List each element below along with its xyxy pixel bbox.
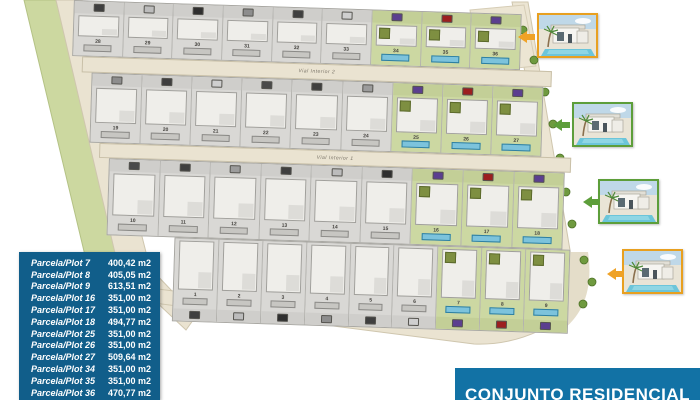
- villa-render-thumbnail-2: [572, 102, 633, 147]
- table-row: Parcela/Plot 17351,00 m2: [19, 304, 160, 316]
- car-icon: [129, 162, 140, 170]
- house-footprint: [415, 183, 458, 226]
- lawn-square: [520, 189, 531, 200]
- patio: [499, 41, 514, 48]
- front-garden: 14: [310, 224, 360, 243]
- plot-33: 33: [321, 9, 372, 65]
- arrow-tail: [592, 199, 600, 205]
- villa-render-image: [539, 15, 596, 56]
- car-icon: [212, 79, 223, 87]
- plot-13: 13: [259, 164, 312, 241]
- arrow-head: [607, 268, 616, 280]
- car-icon: [230, 165, 241, 173]
- table-row: Parcela/Plot 26351,00 m2: [19, 340, 160, 352]
- plot-area: 509,64 m2: [108, 352, 151, 362]
- driveway: [362, 167, 412, 181]
- plots-table-rows: Parcela/Plot 7400,42 m2Parcela/Plot 8405…: [19, 257, 160, 399]
- plot-19: 19: [90, 74, 142, 144]
- front-garden: 26: [441, 136, 491, 155]
- plot-6: 6: [392, 245, 438, 328]
- plot-24: 24: [341, 82, 393, 152]
- patio: [449, 39, 464, 46]
- plot-21: 21: [191, 77, 243, 147]
- front-garden: 36: [470, 51, 519, 70]
- villa-render-thumbnail-3: [598, 179, 659, 224]
- house-footprint: [516, 186, 559, 229]
- villa-render-image: [574, 104, 631, 145]
- pool: [314, 302, 339, 310]
- pool: [182, 298, 207, 306]
- patio: [420, 120, 435, 132]
- pool: [169, 225, 198, 233]
- pool: [219, 227, 248, 235]
- plot-31: 31: [222, 6, 273, 62]
- front-garden: 13: [259, 222, 309, 241]
- house-footprint: [112, 173, 155, 216]
- plot-27: 27: [491, 86, 542, 156]
- car-icon: [412, 86, 423, 94]
- car-icon: [391, 13, 402, 21]
- plot-area: 351,00 m2: [108, 340, 151, 350]
- front-garden: 34: [371, 47, 420, 66]
- driveway: [312, 166, 362, 180]
- house-footprint: [365, 181, 408, 224]
- house-footprint: [276, 21, 317, 43]
- plot-26: 26: [441, 85, 493, 155]
- lawn-square: [399, 100, 410, 111]
- house-footprint: [485, 250, 521, 300]
- pool: [270, 300, 295, 308]
- location-arrow-icon: [607, 268, 624, 280]
- plot-label: Parcela/Plot 18: [31, 317, 95, 327]
- driveway: [343, 82, 392, 96]
- plot-28: 28: [73, 1, 124, 57]
- house-footprint: [346, 96, 388, 132]
- pool: [332, 52, 360, 60]
- plot-9: 9: [524, 249, 569, 332]
- driveway: [305, 312, 348, 325]
- plot-label: Parcela/Plot 34: [31, 364, 95, 374]
- front-garden: 4: [305, 295, 348, 313]
- pool: [232, 49, 260, 57]
- car-icon: [331, 168, 342, 176]
- front-garden: 22: [241, 129, 291, 148]
- driveway: [323, 9, 372, 23]
- plot-7: 7: [436, 247, 482, 330]
- driveway: [124, 3, 173, 17]
- patio: [169, 112, 184, 124]
- house-footprint: [222, 242, 258, 292]
- villa-render-image: [624, 251, 681, 292]
- car-icon: [452, 319, 463, 327]
- lawn-square: [419, 186, 430, 197]
- pool: [226, 299, 251, 307]
- plot-2: 2: [217, 240, 263, 323]
- pool: [251, 136, 280, 144]
- plot-label: Parcela/Plot 17: [31, 305, 95, 315]
- car-icon: [512, 89, 523, 97]
- car-icon: [93, 4, 104, 12]
- table-row: Parcela/Plot 36470,77 m2: [19, 387, 160, 399]
- house-footprint: [264, 178, 307, 221]
- lawn-square: [445, 252, 456, 263]
- pool: [133, 46, 161, 54]
- location-arrow-icon: [583, 196, 600, 208]
- patio: [320, 117, 335, 129]
- plot-label: Parcela/Plot 26: [31, 340, 95, 350]
- front-garden: 7: [437, 300, 480, 318]
- house-footprint: [178, 240, 214, 290]
- car-icon: [382, 170, 393, 178]
- pool: [351, 139, 380, 147]
- plot-area: 351,00 m2: [108, 364, 151, 374]
- villa-render-image: [600, 181, 657, 222]
- plot-17: 17: [461, 170, 514, 247]
- front-garden: 33: [321, 46, 370, 65]
- banner-title: CONJUNTO RESIDENCIAL: [455, 385, 700, 400]
- front-garden: 3: [261, 294, 304, 312]
- front-garden: 11: [158, 219, 208, 238]
- house-footprint: [425, 26, 466, 48]
- arrow-head: [518, 31, 527, 43]
- house-footprint: [397, 247, 433, 297]
- driveway: [393, 83, 442, 97]
- plot-area: 351,00 m2: [108, 329, 151, 339]
- plot-label: Parcela/Plot 36: [31, 388, 95, 398]
- villa-render-thumbnail-1: [537, 13, 598, 58]
- house-footprint: [266, 243, 302, 293]
- arrow-head: [553, 119, 562, 131]
- pool: [101, 131, 130, 139]
- patio: [300, 35, 315, 42]
- arrow-tail: [562, 122, 570, 128]
- house-footprint: [163, 175, 206, 218]
- plot-36: 36: [470, 14, 520, 70]
- pool: [183, 48, 211, 56]
- plot-label: Parcela/Plot 7: [31, 258, 90, 268]
- table-row: Parcela/Plot 34351,00 m2: [19, 363, 160, 375]
- front-garden: 9: [524, 302, 567, 320]
- patio: [440, 210, 455, 224]
- front-garden: 29: [123, 40, 172, 59]
- front-garden: 20: [141, 126, 191, 145]
- patio: [288, 205, 303, 219]
- driveway: [110, 159, 160, 173]
- patio: [549, 283, 562, 299]
- front-garden: 27: [491, 137, 541, 156]
- front-garden: 31: [222, 43, 271, 62]
- car-icon: [111, 76, 122, 84]
- patio: [400, 38, 415, 45]
- patio: [418, 279, 431, 295]
- pool: [381, 54, 409, 62]
- car-icon: [408, 318, 419, 326]
- house-footprint: [446, 99, 488, 135]
- car-icon: [342, 11, 353, 19]
- car-icon: [496, 320, 507, 328]
- house-footprint: [396, 97, 438, 133]
- plot-20: 20: [141, 75, 193, 145]
- patio: [119, 110, 134, 122]
- car-icon: [462, 87, 473, 95]
- table-row: Parcela/Plot 18494,77 m2: [19, 316, 160, 328]
- driveway: [293, 80, 342, 94]
- patio: [198, 272, 211, 288]
- table-row: Parcela/Plot 27509,64 m2: [19, 351, 160, 363]
- car-icon: [262, 81, 273, 89]
- driveway: [436, 317, 479, 330]
- plot-row-4: 123456789: [172, 237, 570, 333]
- front-garden: 35: [421, 49, 470, 68]
- house-footprint: [195, 91, 237, 127]
- patio: [187, 202, 202, 216]
- plot-label: Parcela/Plot 9: [31, 281, 90, 291]
- plot-area: 351,00 m2: [108, 293, 151, 303]
- patio: [238, 204, 253, 218]
- plot-11: 11: [158, 161, 211, 238]
- driveway: [174, 4, 223, 18]
- table-row: Parcela/Plot 35351,00 m2: [19, 375, 160, 387]
- table-row: Parcela/Plot 7400,42 m2: [19, 257, 160, 269]
- patio: [462, 280, 475, 296]
- pool: [118, 224, 147, 232]
- plot-29: 29: [123, 3, 174, 59]
- car-icon: [432, 171, 443, 179]
- driveway: [413, 169, 463, 183]
- lawn-square: [379, 28, 390, 39]
- pool: [421, 233, 450, 241]
- patio: [339, 207, 354, 221]
- plot-12: 12: [209, 162, 262, 239]
- plots-price-table: Parcela/Plot 7400,42 m2Parcela/Plot 8405…: [19, 252, 160, 400]
- plot-15: 15: [360, 167, 413, 244]
- front-garden: 28: [73, 38, 122, 57]
- house-footprint: [441, 249, 477, 299]
- driveway: [422, 12, 471, 26]
- car-icon: [281, 167, 292, 175]
- front-garden: 1: [173, 291, 216, 309]
- car-icon: [533, 175, 544, 183]
- plot-label: Parcela/Plot 25: [31, 329, 95, 339]
- car-icon: [312, 83, 323, 91]
- plot-10: 10: [108, 159, 161, 236]
- pool: [431, 55, 459, 63]
- car-icon: [441, 15, 452, 23]
- plot-25: 25: [391, 83, 443, 153]
- plot-32: 32: [272, 7, 323, 63]
- front-garden: 6: [393, 298, 436, 316]
- car-icon: [491, 16, 502, 24]
- plot-area: 351,00 m2: [108, 305, 151, 315]
- brochure-page: { "banner": { "text": "CONJUNTO RESIDENC…: [0, 0, 700, 400]
- plot-35: 35: [421, 12, 472, 68]
- house-footprint: [376, 25, 417, 47]
- pool: [402, 305, 427, 313]
- driveway: [160, 161, 210, 175]
- front-garden: 25: [391, 134, 441, 153]
- car-icon: [179, 163, 190, 171]
- patio: [220, 113, 235, 125]
- car-icon: [161, 78, 172, 86]
- patio: [102, 29, 117, 36]
- plot-area: 405,05 m2: [108, 270, 151, 280]
- patio: [374, 278, 387, 294]
- driveway: [514, 172, 564, 186]
- car-icon: [364, 316, 375, 324]
- pool: [371, 232, 400, 240]
- car-icon: [540, 322, 551, 330]
- plot-34: 34: [371, 10, 422, 66]
- plot-label: Parcela/Plot 8: [31, 270, 90, 280]
- driveway: [524, 319, 567, 332]
- driveway: [75, 1, 124, 15]
- pool: [301, 137, 330, 145]
- plot-area: 470,77 m2: [108, 388, 151, 398]
- pool: [446, 306, 471, 314]
- plot-label: Parcela/Plot 35: [31, 376, 95, 386]
- driveway: [261, 164, 311, 178]
- arrow-head: [583, 196, 592, 208]
- plot-area: 400,42 m2: [108, 258, 151, 268]
- house-footprint: [127, 17, 168, 39]
- front-garden: 32: [272, 44, 321, 63]
- house-footprint: [145, 89, 187, 125]
- front-garden: 2: [217, 293, 260, 311]
- front-garden: 16: [411, 227, 461, 246]
- driveway: [211, 162, 261, 176]
- house-footprint: [213, 177, 256, 220]
- pool: [151, 133, 180, 141]
- patio: [470, 121, 485, 133]
- plot-area: 351,00 m2: [108, 376, 151, 386]
- car-icon: [277, 314, 288, 322]
- front-garden: 5: [349, 297, 392, 315]
- pool: [452, 142, 481, 150]
- plot-area: 613,51 m2: [108, 281, 151, 291]
- driveway: [261, 311, 304, 324]
- plot-row-3: 101112131415161718: [107, 158, 565, 249]
- pool: [481, 57, 509, 65]
- house-footprint: [496, 100, 538, 136]
- house-footprint: [95, 88, 137, 124]
- patio: [137, 201, 152, 215]
- house-footprint: [326, 23, 367, 45]
- driveway: [243, 78, 292, 92]
- table-row: Parcela/Plot 25351,00 m2: [19, 328, 160, 340]
- patio: [251, 33, 266, 40]
- patio: [370, 118, 385, 130]
- patio: [520, 123, 535, 135]
- patio: [201, 32, 216, 39]
- driveway: [480, 318, 523, 331]
- road-label: Vial Interior 1: [317, 154, 354, 161]
- pool: [320, 230, 349, 238]
- front-garden: 15: [360, 225, 410, 244]
- patio: [505, 282, 518, 298]
- plot-3: 3: [261, 241, 307, 324]
- pool: [533, 309, 558, 317]
- front-garden: 24: [341, 133, 391, 152]
- driveway: [493, 86, 542, 100]
- lawn-square: [478, 31, 489, 42]
- house-footprint: [177, 18, 218, 40]
- patio: [270, 115, 285, 127]
- plot-1: 1: [173, 238, 219, 321]
- pool: [201, 134, 230, 142]
- driveway: [142, 75, 191, 89]
- front-garden: 19: [90, 125, 140, 144]
- patio: [541, 213, 556, 227]
- patio: [350, 36, 365, 43]
- house-footprint: [466, 185, 509, 228]
- table-row: Parcela/Plot 9613,51 m2: [19, 281, 160, 293]
- driveway: [92, 74, 141, 88]
- plot-14: 14: [310, 166, 363, 243]
- front-garden: 8: [480, 301, 523, 319]
- lawn-square: [533, 255, 544, 266]
- driveway: [173, 308, 216, 321]
- driveway: [372, 10, 421, 24]
- driveway: [192, 77, 241, 91]
- car-icon: [233, 312, 244, 320]
- arrow-tail: [616, 271, 624, 277]
- house-footprint: [475, 28, 516, 50]
- location-arrow-icon: [553, 119, 570, 131]
- title-banner: CONJUNTO RESIDENCIAL: [455, 368, 700, 400]
- plot-4: 4: [305, 243, 351, 326]
- pool: [490, 307, 515, 315]
- car-icon: [189, 311, 200, 319]
- table-row: Parcela/Plot 8405,05 m2: [19, 269, 160, 281]
- front-garden: 17: [461, 228, 511, 247]
- house-footprint: [245, 93, 287, 129]
- driveway: [463, 170, 513, 184]
- plot-22: 22: [241, 78, 293, 148]
- front-garden: 12: [209, 220, 259, 239]
- patio: [242, 274, 255, 290]
- table-row: Parcela/Plot 16351,00 m2: [19, 292, 160, 304]
- front-garden: 18: [512, 230, 562, 249]
- pool: [270, 228, 299, 236]
- pool: [522, 236, 551, 244]
- front-garden: 30: [173, 41, 222, 60]
- driveway: [348, 314, 391, 327]
- driveway: [217, 310, 260, 323]
- plot-5: 5: [348, 244, 394, 327]
- plot-16: 16: [411, 169, 464, 246]
- driveway: [443, 85, 492, 99]
- house-footprint: [78, 15, 119, 37]
- car-icon: [143, 5, 154, 13]
- lawn-square: [429, 29, 440, 40]
- car-icon: [321, 315, 332, 323]
- villa-render-thumbnail-4: [622, 249, 683, 294]
- lawn-square: [449, 102, 460, 113]
- patio: [151, 30, 166, 37]
- pool: [502, 144, 531, 152]
- driveway: [273, 7, 322, 21]
- house-footprint: [227, 20, 268, 42]
- lawn-square: [470, 188, 481, 199]
- house-footprint: [353, 246, 389, 296]
- plot-23: 23: [291, 80, 343, 150]
- pool: [401, 140, 430, 148]
- car-icon: [292, 10, 303, 18]
- lawn-square: [499, 103, 510, 114]
- plot-area: 494,77 m2: [108, 317, 151, 327]
- house-footprint: [310, 245, 346, 295]
- location-arrow-icon: [518, 31, 535, 43]
